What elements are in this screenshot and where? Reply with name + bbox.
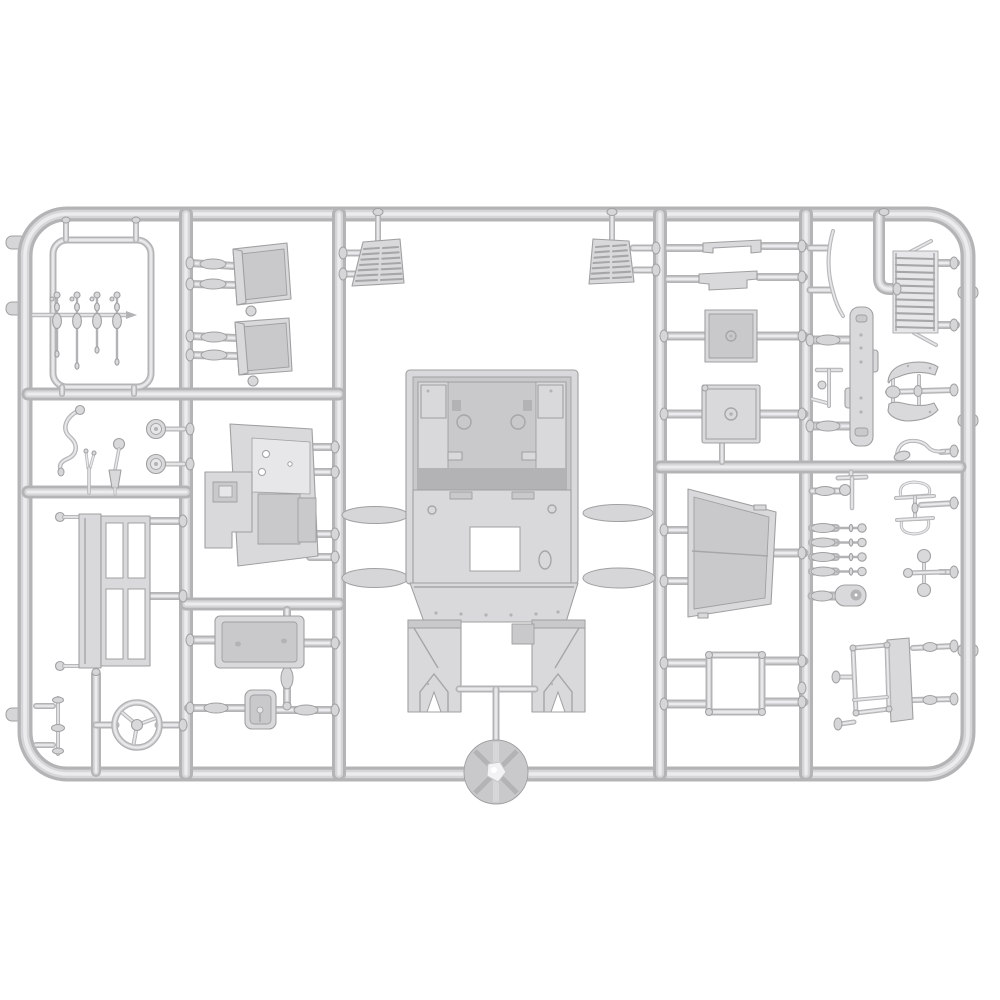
cab-body — [342, 370, 655, 752]
steering-wheel — [96, 703, 184, 748]
knob-cross — [904, 550, 957, 597]
hatch-panel-upper — [668, 310, 804, 362]
fender-pair — [886, 362, 954, 421]
mirror-loop-bracket — [896, 482, 956, 534]
step-bracket-upper — [668, 240, 804, 253]
cab-gate — [583, 505, 653, 522]
seat-inner — [240, 249, 287, 300]
wheel-hub — [132, 720, 143, 731]
window-pane — [128, 523, 145, 578]
window-frame — [56, 513, 183, 671]
axle-rod — [36, 697, 65, 754]
stowage-tray — [190, 616, 336, 668]
vent-left — [344, 216, 404, 286]
windshield-panel — [666, 489, 804, 618]
seat-knob — [246, 306, 256, 316]
sprue-hub — [464, 740, 528, 804]
tie-rod-set — [811, 524, 866, 577]
wiper-blade — [810, 231, 843, 316]
seat-upper — [191, 243, 291, 316]
fender-upper — [888, 362, 938, 383]
cab-small-block — [512, 624, 534, 644]
cab-gate — [342, 507, 408, 524]
rail-body — [850, 307, 873, 446]
horn-dial-upper — [147, 420, 185, 439]
rod-tip — [126, 311, 137, 319]
latch-box — [188, 690, 336, 729]
hatch-panel-lower — [668, 385, 804, 462]
tie-rod-head — [858, 567, 866, 575]
window-pane — [128, 589, 145, 659]
window-pane — [106, 523, 123, 578]
seat-lower — [191, 318, 292, 386]
vent-right — [589, 216, 657, 284]
dashboard-subpanel — [252, 438, 310, 494]
dashboard — [205, 424, 336, 566]
control-lever-set — [33, 292, 137, 369]
tie-rod-head — [858, 538, 866, 546]
cab-corner-box — [421, 385, 446, 418]
chassis-rail — [810, 307, 878, 446]
horn-dial-lower — [147, 455, 185, 474]
window-pane — [106, 589, 123, 659]
cab-apron — [410, 583, 578, 622]
crank-handle — [58, 406, 85, 477]
product-photo — [0, 0, 1000, 1000]
radiator-grille — [893, 241, 956, 345]
sprue-photo-canvas — [0, 0, 1000, 1000]
step-bracket-lower — [668, 271, 804, 290]
t-lever — [812, 370, 841, 406]
hook-lever — [893, 441, 956, 463]
cab-gate — [583, 568, 655, 588]
seat-knob — [248, 376, 258, 386]
t-handle — [812, 472, 866, 508]
square-frame — [668, 652, 804, 716]
box-pin — [257, 707, 263, 713]
bench-frame — [832, 638, 954, 730]
dashboard-recess — [258, 494, 300, 544]
shackle — [811, 585, 866, 606]
levers — [50, 292, 121, 369]
cab-floor-cutout — [470, 527, 520, 571]
tie-rod-head — [858, 524, 866, 532]
seat-inner — [242, 323, 289, 371]
hub-sparkle — [491, 767, 497, 773]
window-stile — [79, 514, 101, 668]
tie-rod-head — [858, 553, 866, 561]
cab-gate — [342, 569, 408, 588]
cab-step-band — [418, 468, 566, 490]
